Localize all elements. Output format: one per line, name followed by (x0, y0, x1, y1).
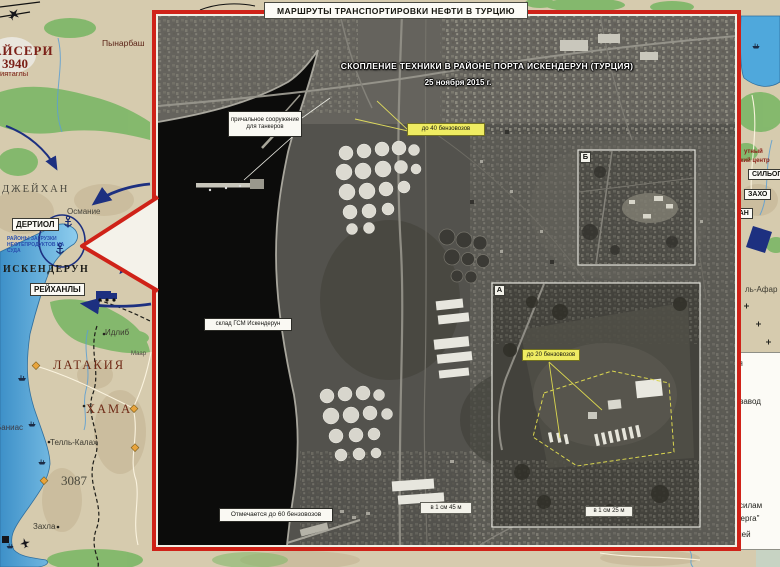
satellite-photo (156, 14, 737, 547)
annotation-trucks-20: до 20 бензовозов (522, 349, 580, 361)
label-tell-kalah: Телль-Калах (50, 439, 97, 447)
label-kayseri-sub: иятаглы (0, 70, 28, 78)
label-silopi: СИЛЬОПИ (748, 169, 780, 180)
inset-b-letter: Б (580, 152, 591, 163)
label-hub-partial-2: ский центр (737, 158, 770, 164)
label-loading-areas: РАЙОНЫ ЗАГРУЗКИ НЕФТЕПРОДУКТОВ НА СУДА (7, 236, 69, 254)
label-zahla: Захла (33, 523, 55, 531)
legend-fragment: силам (739, 502, 762, 510)
slide-title: МАРШРУТЫ ТРАНСПОРТИРОВКИ НЕФТИ В ТУРЦИЮ (264, 2, 528, 19)
label-hama: ХАМА (86, 403, 132, 416)
inset-b (578, 150, 695, 265)
annotation-mooring: причальное сооружение для танкеров (228, 111, 302, 137)
annotation-fuel-depot: склад ГСМ Искендерун (204, 318, 292, 331)
label-idlib: Идлиб (105, 329, 129, 337)
mooring-line1: причальное сооружение (231, 117, 299, 124)
mooring-line2: для танкеров (246, 124, 283, 131)
loading-areas-line2: НЕФТЕПРОДУКТОВ НА СУДА (7, 242, 64, 254)
annotation-trucks-60: Отмечается до 60 бензовозов (219, 508, 333, 522)
label-hub-partial-1: утный (744, 149, 763, 155)
label-iskenderun: ИСКЕНДЕРУН (3, 265, 89, 275)
inset-a (492, 283, 700, 527)
photo-caption: СКОПЛЕНИЕ ТЕХНИКИ В РАЙОНЕ ПОРТА ИСКЕНДЕ… (317, 62, 657, 71)
label-latakia: ЛАТАКИЯ (53, 359, 125, 372)
label-pinarbasi: Пынарбаш (102, 39, 145, 48)
label-banias: Баниас (0, 424, 23, 432)
scale-inset: в 1 см 25 м (585, 506, 633, 517)
label-maar: Маар (131, 351, 146, 357)
briefing-slide: АЙСЕРИ 3940 иятаглы Пынарбаш ДЖЕЙХАН Осм… (0, 0, 780, 567)
label-tal-afar: ль-Афар (745, 286, 777, 294)
satellite-panel: СКОПЛЕНИЕ ТЕХНИКИ В РАЙОНЕ ПОРТА ИСКЕНДЕ… (152, 10, 741, 551)
label-islahie: Исля (129, 241, 147, 249)
large-roof (635, 379, 663, 399)
label-reyhanli: РЕЙХАНЛЫ (30, 283, 85, 296)
label-zakho: ЗАХО (744, 189, 771, 200)
label-elevation-3087: 3087 (61, 474, 87, 487)
annotation-trucks-40: до 40 бензовозов (407, 123, 485, 136)
lake (740, 16, 780, 86)
label-dzheikhan: ДЖЕЙХАН (2, 185, 69, 196)
label-osmaniye: Османие (67, 208, 101, 216)
photo-date: 25 ноября 2015 г. (388, 79, 528, 88)
scale-main: в 1 см 45 м (420, 502, 472, 514)
label-dertiol: ДЕРТИОЛ (12, 218, 59, 231)
inset-a-letter: А (494, 285, 505, 296)
